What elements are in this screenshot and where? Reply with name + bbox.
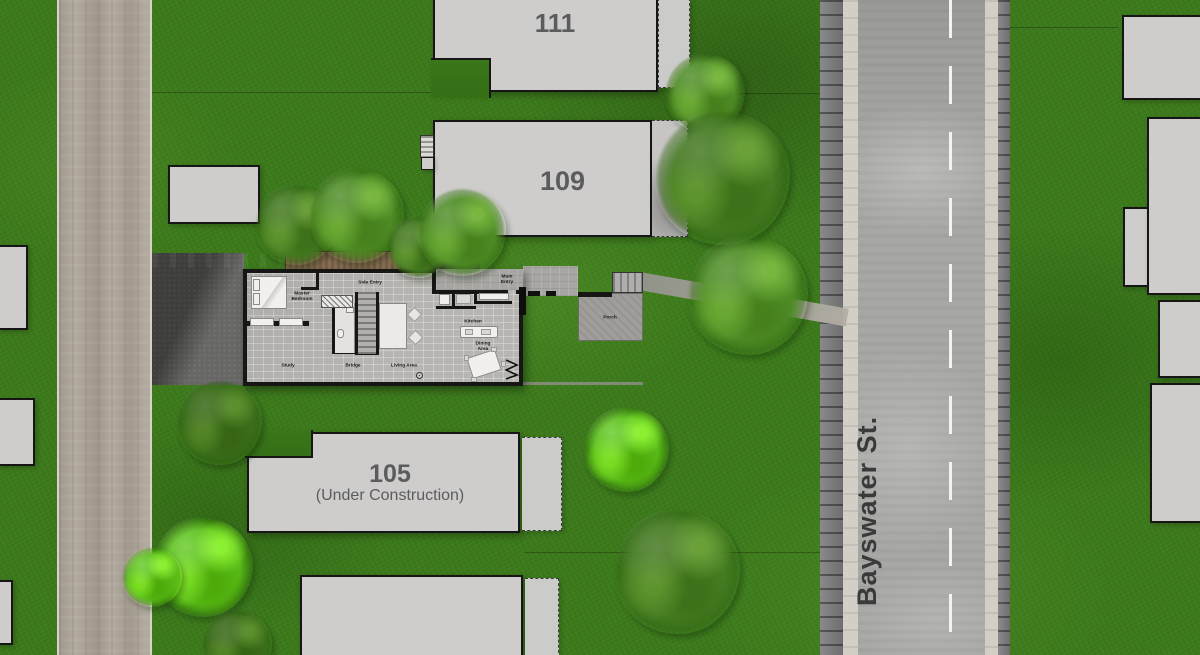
room-label-porch: Porch xyxy=(603,314,617,320)
window-seat xyxy=(279,318,303,326)
tree xyxy=(418,188,506,276)
room-label-dining-area: Dining Area xyxy=(471,340,495,351)
ottoman xyxy=(407,307,423,323)
room-label-side-entry: Side Entry xyxy=(358,279,382,285)
sink xyxy=(465,329,473,335)
background-building xyxy=(168,165,260,224)
dining-chair xyxy=(471,377,477,382)
closet xyxy=(321,295,353,308)
retaining-wall xyxy=(152,253,285,268)
building-111-number: 111 xyxy=(455,8,655,39)
tree xyxy=(177,380,262,465)
background-building-extension xyxy=(525,578,559,655)
room-label-living-area: Living Area xyxy=(391,362,417,368)
tree xyxy=(688,235,808,355)
background-building xyxy=(0,245,28,330)
room-label-bridge: Bridge xyxy=(345,362,360,368)
tree xyxy=(584,407,669,492)
appliance xyxy=(439,294,450,305)
background-building xyxy=(1147,117,1200,295)
counter xyxy=(479,293,509,300)
house-floor-plan: Master Bedroom Side Entry Main Entry Kit… xyxy=(243,269,523,386)
street-name-label: Bayswater St. xyxy=(848,393,886,628)
building-105-label: 105 (Under Construction) xyxy=(280,460,500,505)
tree xyxy=(202,610,272,655)
wall-segment xyxy=(528,291,540,296)
house-wall xyxy=(243,269,247,386)
building-105-extension xyxy=(522,437,562,531)
pillow xyxy=(253,293,260,305)
wall-segment xyxy=(546,291,556,296)
room-label-master-bedroom: Master Bedroom xyxy=(291,290,312,301)
house-wall xyxy=(243,382,523,386)
main-entry-door xyxy=(519,287,526,315)
background-building xyxy=(300,575,523,655)
lot-boundary-line xyxy=(1010,27,1118,28)
tree xyxy=(122,547,182,607)
ottoman xyxy=(408,330,424,346)
room-label-main-entry: Main Entry xyxy=(501,273,513,284)
building-109-steps xyxy=(420,135,434,158)
curb-west xyxy=(820,0,843,655)
porch-steps xyxy=(612,272,643,293)
room-label-study: Study xyxy=(281,362,294,368)
kitchen-wall xyxy=(436,306,476,309)
section-break-symbol xyxy=(505,357,519,381)
background-building xyxy=(0,398,35,466)
window-seat xyxy=(250,318,274,326)
road-center-dashed-line xyxy=(949,0,952,655)
porch-wall xyxy=(578,292,612,297)
staircase xyxy=(355,292,379,354)
building-105-status: (Under Construction) xyxy=(280,487,500,505)
building-109-number: 109 xyxy=(453,166,672,197)
driveway xyxy=(152,253,244,385)
fence-line xyxy=(523,382,643,385)
appliance xyxy=(456,294,471,304)
background-building xyxy=(1158,300,1200,378)
building-105-number: 105 xyxy=(280,460,500,489)
dining-table xyxy=(466,349,501,379)
site-plan: Bayswater St. Porch 111 109 105 (Under C… xyxy=(0,0,1200,655)
background-building xyxy=(1150,383,1200,523)
road-shoulder xyxy=(985,0,998,655)
background-building xyxy=(1122,15,1200,100)
sofa xyxy=(379,303,407,349)
kitchen-wall xyxy=(474,301,512,304)
pillow xyxy=(253,279,260,291)
background-building xyxy=(0,580,13,645)
building-109-stoop xyxy=(421,157,434,170)
cooktop xyxy=(481,329,491,335)
building-111-notch xyxy=(431,58,491,98)
tree xyxy=(615,509,740,634)
lot-boundary-line xyxy=(152,92,433,93)
curb-east xyxy=(998,0,1010,655)
toilet xyxy=(337,329,344,338)
floor-feature xyxy=(416,372,423,379)
dining-chair xyxy=(464,355,469,361)
tree xyxy=(655,110,790,245)
room-label-kitchen: Kitchen xyxy=(464,318,482,324)
